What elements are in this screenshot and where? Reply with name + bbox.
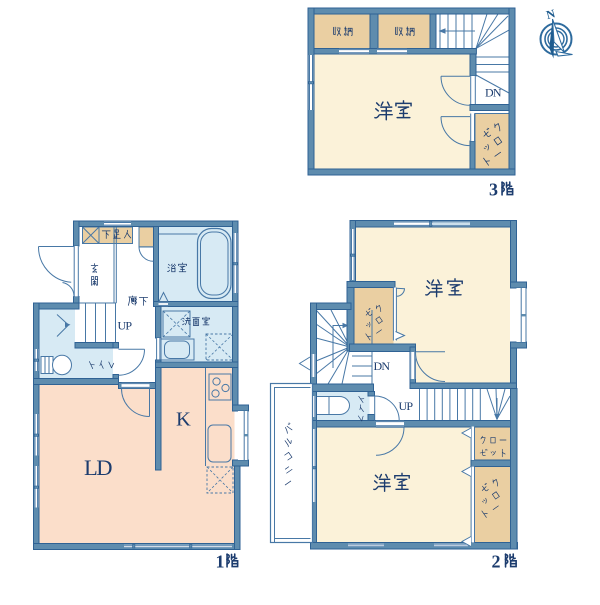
svg-text:K: K: [176, 409, 191, 431]
svg-text:1: 1: [216, 552, 225, 572]
svg-text:UP: UP: [118, 319, 133, 333]
svg-text:3: 3: [489, 180, 498, 200]
svg-text:LD: LD: [84, 455, 112, 480]
svg-text:UP: UP: [399, 399, 414, 413]
svg-text:DN: DN: [485, 86, 502, 100]
svg-text:2: 2: [492, 552, 501, 572]
svg-text:DN: DN: [374, 359, 391, 373]
